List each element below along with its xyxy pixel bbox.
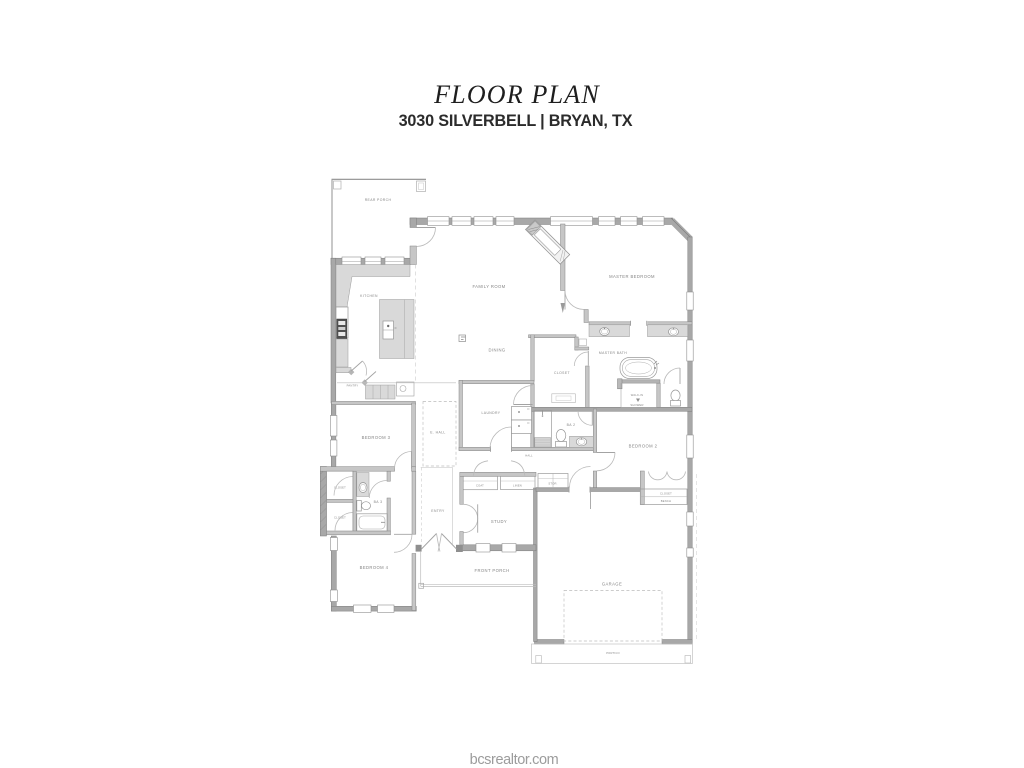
svg-text:E. HALL: E. HALL	[430, 431, 445, 435]
svg-text:CLOSET: CLOSET	[660, 492, 672, 496]
svg-text:FAMILY ROOM: FAMILY ROOM	[472, 284, 505, 289]
svg-text:PANTRY: PANTRY	[347, 384, 359, 388]
svg-text:FRONT PORCH: FRONT PORCH	[474, 568, 509, 573]
svg-text:HALL: HALL	[525, 454, 533, 458]
svg-text:PORTICO: PORTICO	[606, 651, 620, 655]
svg-text:COAT: COAT	[476, 484, 484, 488]
svg-text:SHOWER: SHOWER	[630, 403, 643, 407]
svg-text:LAUNDRY: LAUNDRY	[482, 411, 501, 415]
svg-text:STUDY: STUDY	[491, 519, 507, 524]
svg-text:MASTER BEDROOM: MASTER BEDROOM	[609, 274, 655, 279]
svg-text:DINING: DINING	[488, 348, 505, 353]
svg-text:BA 3: BA 3	[374, 500, 383, 504]
svg-text:BEDROOM 2: BEDROOM 2	[629, 444, 658, 449]
svg-text:LINEN: LINEN	[513, 484, 522, 488]
svg-text:CLOSET: CLOSET	[554, 371, 570, 375]
svg-text:BEDROOM 3: BEDROOM 3	[362, 435, 391, 440]
svg-text:BEDROOM 4: BEDROOM 4	[360, 565, 389, 570]
svg-text:BENCH: BENCH	[661, 499, 671, 503]
svg-text:WALK-IN: WALK-IN	[631, 393, 644, 397]
svg-text:ENTRY: ENTRY	[431, 509, 445, 513]
svg-text:MASTER BATH: MASTER BATH	[599, 351, 627, 355]
svg-text:REAR PORCH: REAR PORCH	[365, 198, 392, 202]
svg-text:BA 2: BA 2	[567, 423, 576, 427]
svg-text:STOR.: STOR.	[548, 482, 557, 486]
svg-text:GARAGE: GARAGE	[602, 582, 622, 587]
svg-text:KITCHEN: KITCHEN	[360, 294, 378, 298]
